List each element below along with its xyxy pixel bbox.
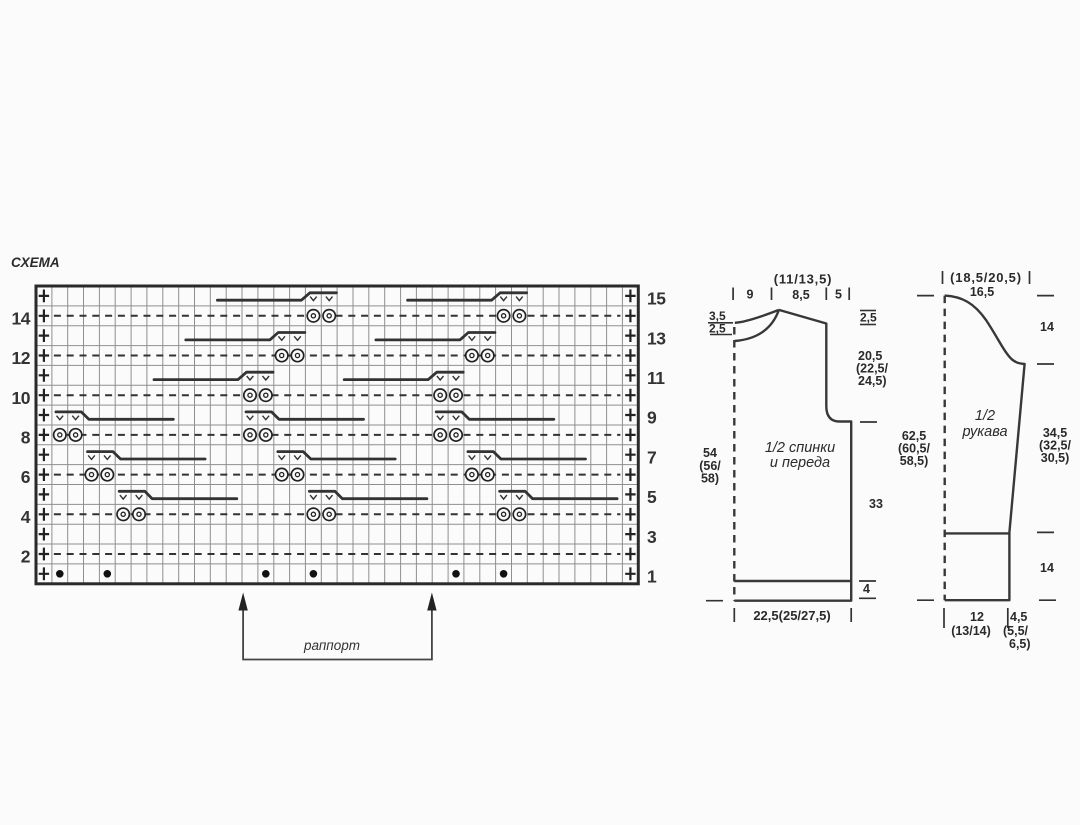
svg-text:1/2: 1/2 (975, 408, 995, 424)
svg-text:58,5): 58,5) (900, 454, 929, 468)
svg-text:(18,5/20,5): (18,5/20,5) (950, 270, 1022, 285)
svg-text:5: 5 (835, 288, 842, 302)
svg-text:(5,5/: (5,5/ (1003, 624, 1029, 638)
svg-text:2,5: 2,5 (709, 322, 726, 336)
svg-text:рукава: рукава (961, 424, 1007, 440)
svg-text:(11/13,5): (11/13,5) (774, 272, 833, 287)
svg-text:22,5(25/27,5): 22,5(25/27,5) (753, 608, 830, 623)
svg-text:8: 8 (21, 428, 31, 448)
svg-text:10: 10 (12, 388, 31, 408)
svg-text:14: 14 (1040, 320, 1054, 334)
svg-text:16,5: 16,5 (970, 285, 994, 299)
svg-text:4,5: 4,5 (1010, 610, 1027, 624)
svg-text:раппорт: раппорт (303, 638, 360, 653)
svg-text:и переда: и переда (770, 455, 830, 471)
svg-text:2,5: 2,5 (860, 311, 877, 325)
svg-text:15: 15 (647, 289, 666, 309)
svg-text:2: 2 (21, 547, 31, 567)
svg-text:9: 9 (747, 288, 754, 302)
svg-text:6,5): 6,5) (1009, 637, 1031, 651)
svg-text:14: 14 (1040, 561, 1054, 575)
svg-text:8,5: 8,5 (792, 288, 809, 302)
svg-text:5: 5 (647, 487, 657, 507)
svg-text:3: 3 (647, 527, 657, 547)
svg-text:6: 6 (21, 467, 31, 487)
svg-text:33: 33 (869, 497, 883, 511)
svg-text:1: 1 (647, 567, 657, 587)
svg-text:13: 13 (647, 328, 666, 348)
svg-text:58): 58) (701, 472, 719, 486)
svg-text:9: 9 (647, 408, 657, 428)
svg-text:12: 12 (970, 610, 984, 624)
svg-text:24,5): 24,5) (858, 374, 887, 388)
svg-text:30,5): 30,5) (1041, 451, 1070, 465)
svg-text:СХЕМА: СХЕМА (11, 255, 60, 270)
svg-text:7: 7 (647, 447, 656, 467)
svg-text:(13/14): (13/14) (951, 624, 991, 638)
svg-text:4: 4 (863, 582, 870, 596)
svg-text:1/2 спинки: 1/2 спинки (765, 440, 835, 456)
svg-text:11: 11 (647, 368, 665, 388)
svg-text:54: 54 (703, 446, 717, 460)
svg-text:4: 4 (21, 507, 31, 527)
svg-text:12: 12 (12, 348, 31, 368)
svg-text:14: 14 (12, 309, 31, 329)
